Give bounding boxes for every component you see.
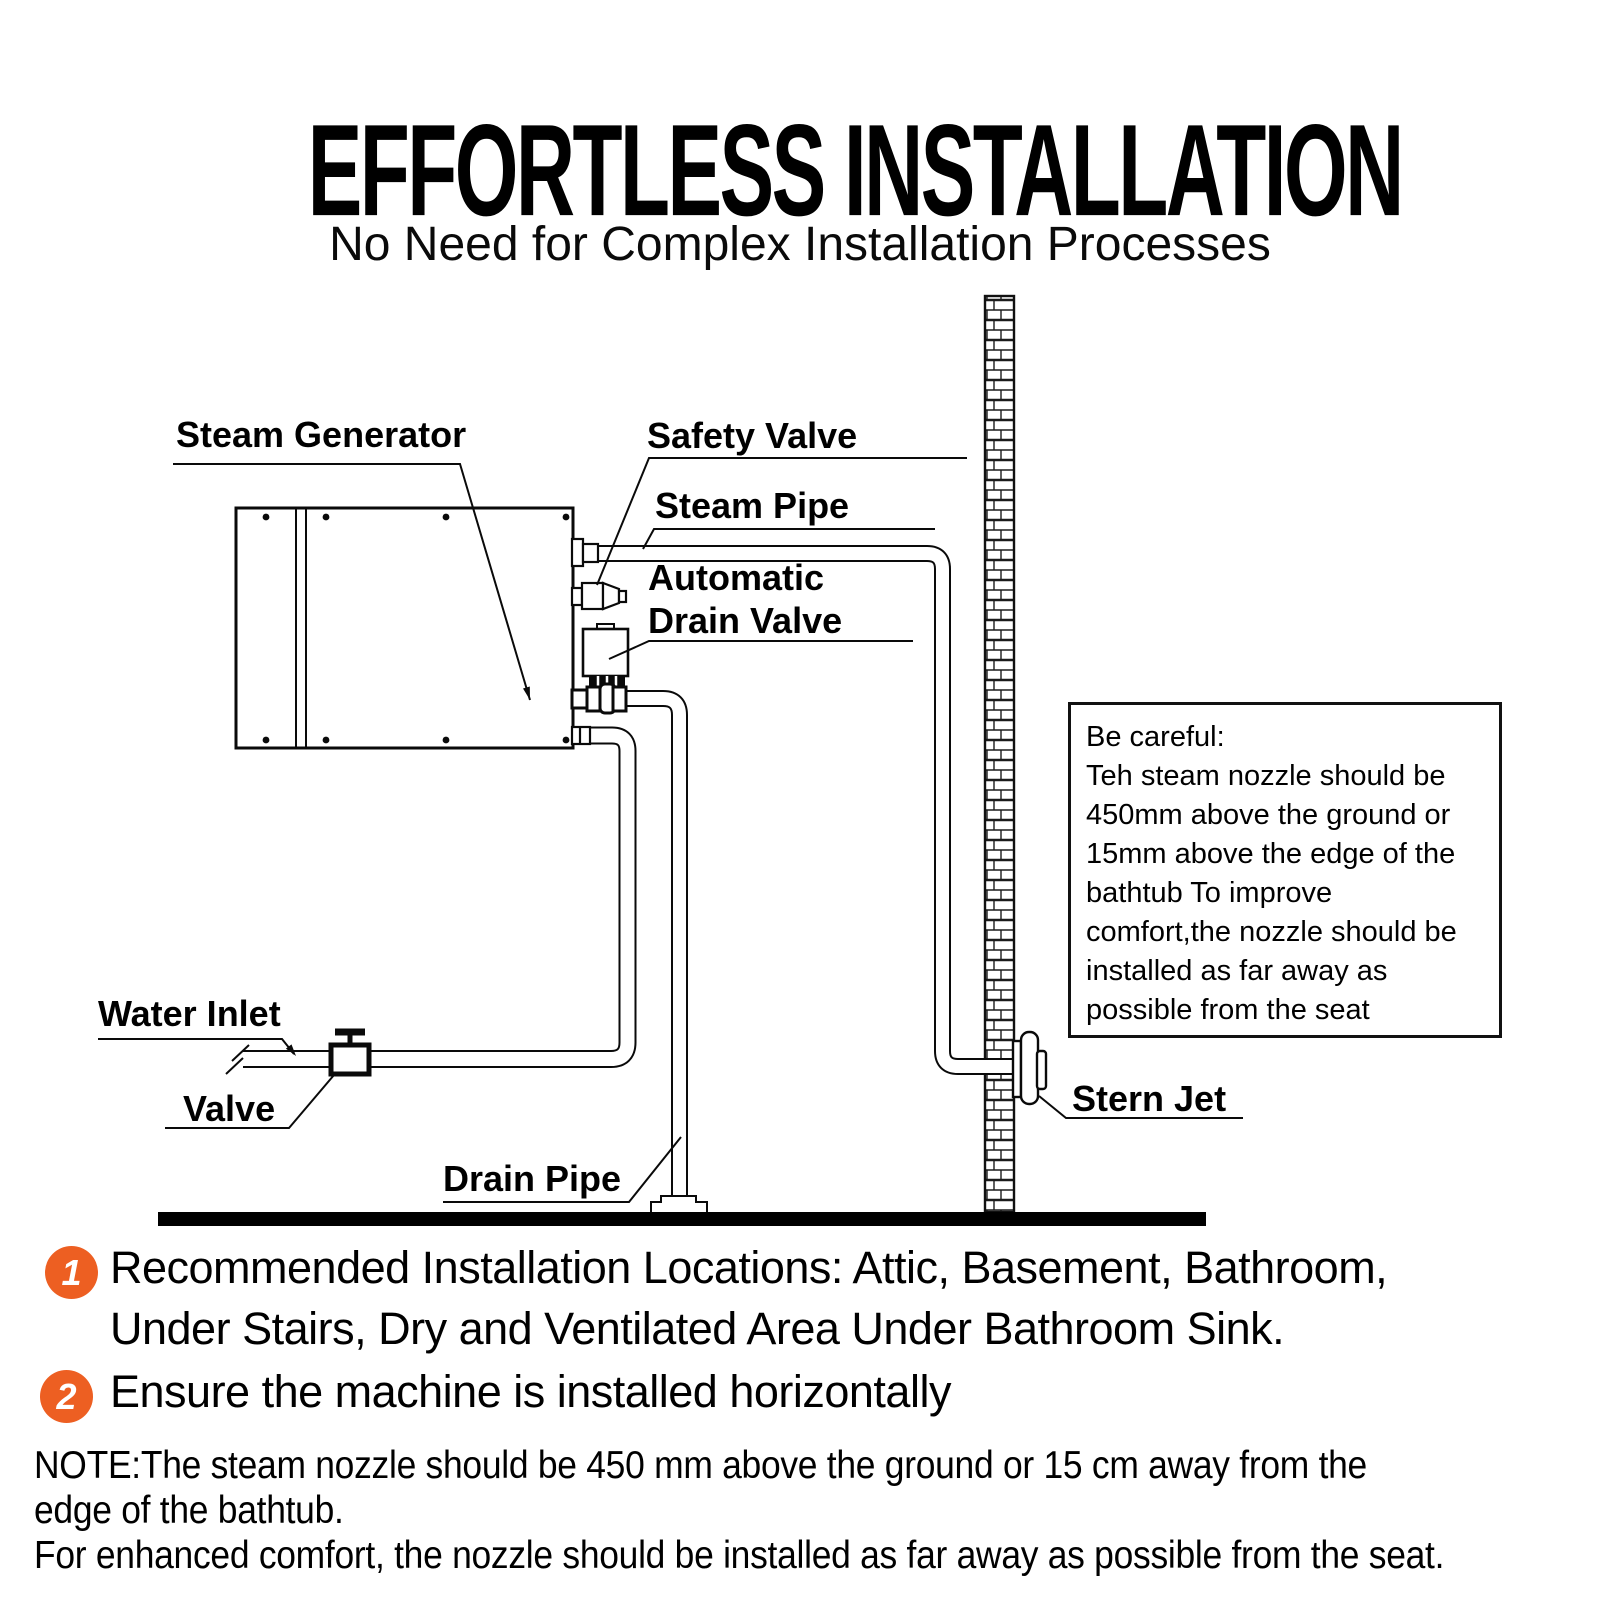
caution-line-1: Be careful: [1086, 718, 1495, 757]
caution-line-5: bathtub To improve [1086, 874, 1495, 913]
label-drain-pipe: Drain Pipe [443, 1157, 621, 1200]
note-1-number: 1 [61, 1252, 81, 1294]
note-2-badge: 2 [40, 1370, 93, 1423]
page-root: EFFORTLESS INSTALLATION No Need for Comp… [0, 0, 1600, 1600]
caution-line-6: comfort,the nozzle should be [1086, 913, 1495, 952]
generator-box [236, 508, 573, 748]
page-title: EFFORTLESS INSTALLATION [308, 106, 1402, 237]
drain-pipe-base [651, 1196, 707, 1212]
note-1-text-line2: Under Stairs, Dry and Ventilated Area Un… [110, 1303, 1284, 1355]
label-automatic-drain-valve-line1: Automatic [648, 556, 842, 599]
water-inlet-stub [572, 727, 590, 744]
label-automatic-drain-valve-line2: Drain Valve [648, 599, 842, 642]
safety-valve-fitting [572, 583, 626, 609]
label-automatic-drain-valve: Automatic Drain Valve [648, 556, 842, 642]
caution-line-7: installed as far away as [1086, 952, 1495, 991]
label-steam-generator: Steam Generator [176, 413, 466, 456]
footnote-line-3: For enhanced comfort, the nozzle should … [34, 1534, 1444, 1578]
note-1-badge: 1 [45, 1246, 98, 1299]
floor-line [158, 1212, 1206, 1226]
stern-jet-nozzle [1013, 1032, 1046, 1104]
caution-line-4: 15mm above the edge of the [1086, 835, 1495, 874]
label-safety-valve: Safety Valve [647, 414, 857, 457]
note-1-text-line1: Recommended Installation Locations: Atti… [110, 1242, 1387, 1294]
footnote-line-1: NOTE:The steam nozzle should be 450 mm a… [34, 1444, 1367, 1488]
page-subtitle: No Need for Complex Installation Process… [0, 219, 1600, 272]
caution-line-2: Teh steam nozzle should be [1086, 757, 1495, 796]
ball-valve [572, 684, 626, 713]
footnote-line-2: edge of the bathtub. [34, 1489, 344, 1533]
label-valve: Valve [183, 1087, 275, 1130]
note-2-number: 2 [56, 1376, 76, 1418]
water-valve [331, 1032, 369, 1074]
caution-line-3: 450mm above the ground or [1086, 796, 1495, 835]
label-water-inlet: Water Inlet [98, 992, 281, 1035]
label-stern-jet: Stern Jet [1072, 1077, 1226, 1120]
water-inlet-pipe [226, 736, 628, 1075]
label-steam-pipe: Steam Pipe [655, 484, 849, 527]
note-2-text-line1: Ensure the machine is installed horizont… [110, 1366, 951, 1418]
caution-line-8: possible from the seat [1086, 991, 1495, 1030]
header: EFFORTLESS INSTALLATION [0, 106, 1600, 234]
steam-outlet-fitting [572, 539, 598, 566]
drain-valve-leader [609, 641, 913, 659]
auto-drain-valve [572, 624, 628, 713]
caution-box: Be careful: Teh steam nozzle should be 4… [1068, 702, 1502, 1038]
